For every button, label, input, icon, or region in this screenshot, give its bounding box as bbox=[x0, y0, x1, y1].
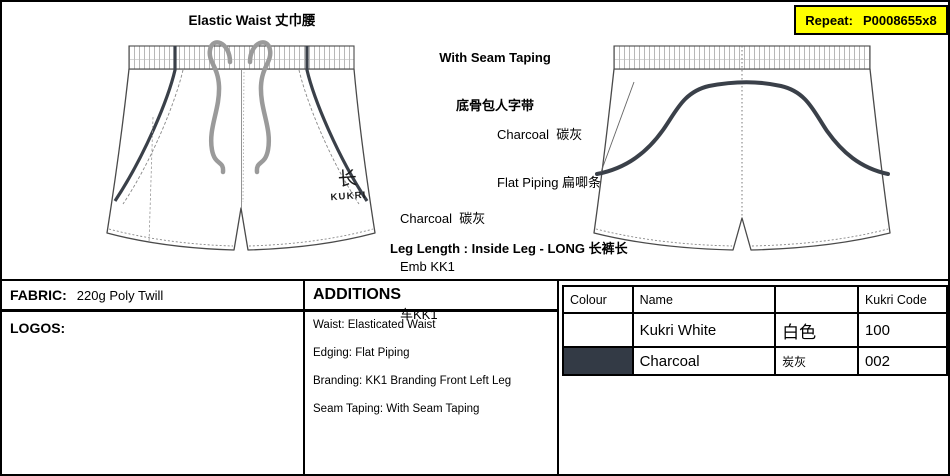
addition-item-branding: Branding: KK1 Branding Front Left Leg bbox=[313, 375, 549, 387]
elastic-waist-label: Elastic Waist 丈巾腰 bbox=[142, 13, 362, 29]
additions-header: ADDITIONS bbox=[305, 281, 557, 312]
leg-length-label: Leg Length : Inside Leg - LONG 长裤长 bbox=[390, 241, 628, 257]
white-name: Kukri White bbox=[633, 313, 776, 347]
emb-line1: Charcoal 碳灰 bbox=[400, 211, 485, 227]
charcoal-swatch bbox=[563, 347, 633, 375]
chinese-name-header bbox=[775, 286, 858, 313]
kukri-logo-glyph: 长 bbox=[337, 167, 358, 190]
back-view-drawing bbox=[594, 46, 890, 250]
charcoal-chinese-name: 炭灰 bbox=[775, 347, 858, 375]
spec-sheet: 长 KUKRI Repeat: P0008655x8 Elastic Waist… bbox=[0, 0, 950, 476]
logos-label: LOGOS: bbox=[10, 320, 65, 336]
front-body-outline bbox=[107, 69, 375, 250]
white-chinese-name: 白色 bbox=[775, 313, 858, 347]
white-swatch bbox=[563, 313, 633, 347]
charcoal-name: Charcoal bbox=[633, 347, 776, 375]
fabric-row: FABRIC: 220g Poly Twill bbox=[2, 281, 303, 312]
colour-header: Colour bbox=[563, 286, 633, 313]
repeat-value: P0008655x8 bbox=[863, 13, 937, 28]
fabric-label: FABRIC: bbox=[10, 287, 67, 303]
seam-taping-line1: With Seam Taping bbox=[420, 50, 570, 66]
charcoal-code: 002 bbox=[858, 347, 947, 375]
colour-row-charcoal: Charcoal 炭灰 002 bbox=[563, 347, 947, 375]
colour-table: Colour Name Kukri Code Kukri White 白色 10… bbox=[562, 285, 948, 376]
addition-item-seam-taping: Seam Taping: With Seam Taping bbox=[313, 403, 549, 415]
addition-item-edging: Edging: Flat Piping bbox=[313, 347, 549, 359]
logos-row: LOGOS: bbox=[2, 312, 303, 346]
addition-item-waist: Waist: Elasticated Waist bbox=[313, 319, 549, 331]
back-waistband bbox=[614, 46, 870, 69]
front-view-drawing: 长 KUKRI bbox=[107, 42, 375, 250]
front-waistband bbox=[129, 46, 354, 69]
spec-section: FABRIC: 220g Poly Twill LOGOS: ADDITIONS… bbox=[2, 279, 948, 474]
repeat-label: Repeat: bbox=[805, 13, 853, 28]
kukri-code-header: Kukri Code bbox=[858, 286, 947, 313]
colour-table-header-row: Colour Name Kukri Code bbox=[563, 286, 947, 313]
additions-list: Waist: Elasticated Waist Edging: Flat Pi… bbox=[305, 312, 557, 438]
white-code: 100 bbox=[858, 313, 947, 347]
additions-panel: ADDITIONS Waist: Elasticated Waist Edgin… bbox=[305, 281, 559, 474]
colour-row-white: Kukri White 白色 100 bbox=[563, 313, 947, 347]
name-header: Name bbox=[633, 286, 776, 313]
fabric-value: 220g Poly Twill bbox=[77, 288, 163, 303]
flat-piping-line2: Flat Piping 扁唧条 bbox=[497, 175, 601, 191]
additions-title: ADDITIONS bbox=[313, 286, 401, 304]
fabric-logos-panel: FABRIC: 220g Poly Twill LOGOS: bbox=[2, 281, 305, 474]
flat-piping-line1: Charcoal 碳灰 bbox=[497, 127, 601, 143]
flat-piping-label: Charcoal 碳灰 Flat Piping 扁唧条 bbox=[497, 95, 601, 223]
repeat-box: Repeat: P0008655x8 bbox=[794, 5, 948, 35]
emb-line2: Emb KK1 bbox=[400, 259, 485, 275]
